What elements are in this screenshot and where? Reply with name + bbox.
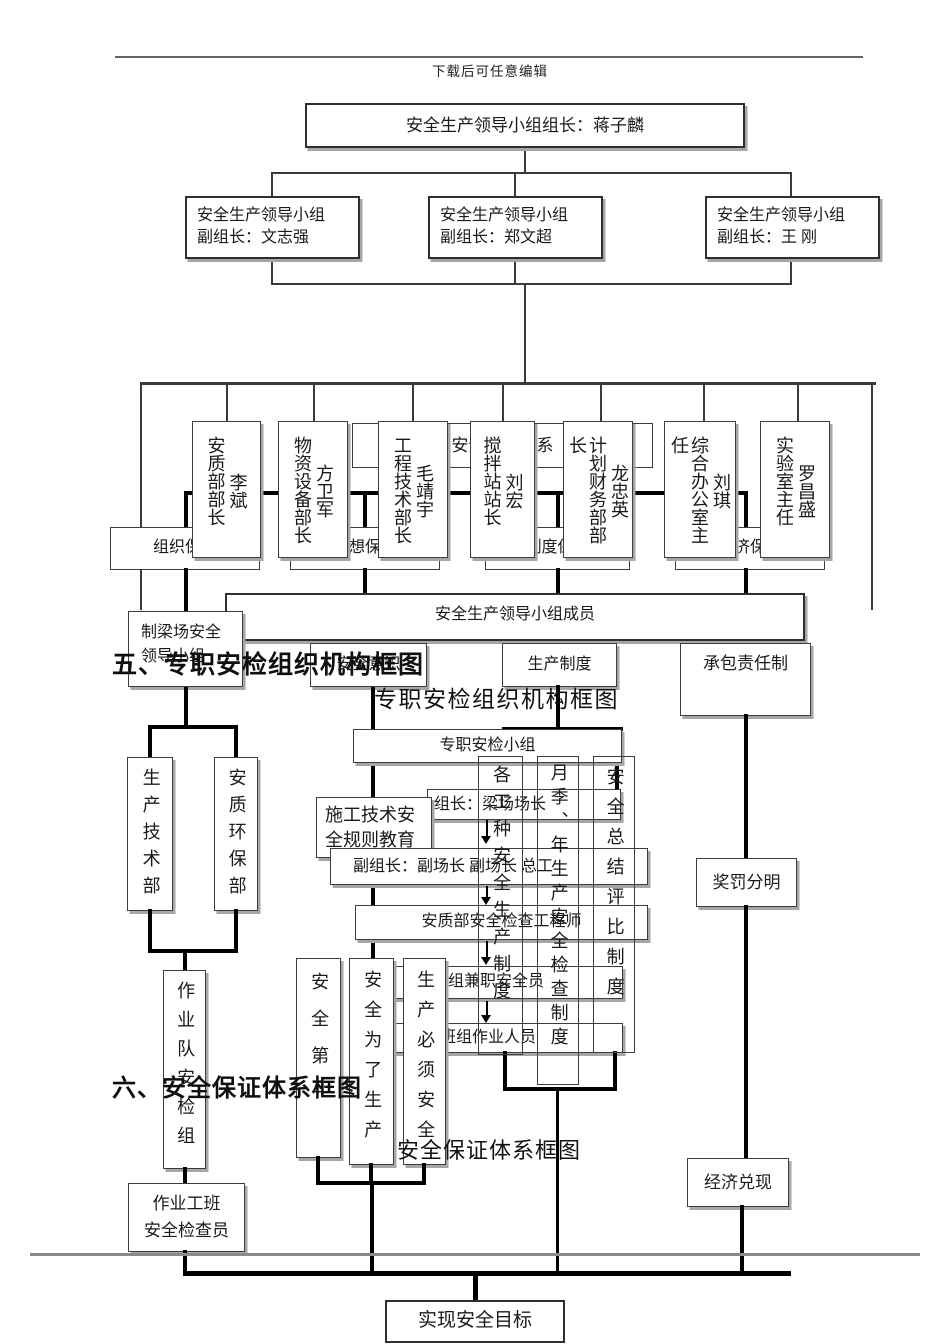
dept-box-materials: 物资设备部长 方卫军 bbox=[278, 421, 348, 558]
contract-box: 承包责任制 bbox=[680, 643, 811, 716]
connector-line bbox=[183, 1271, 791, 1276]
deputy-2-line2: 副组长：郑文超 bbox=[440, 227, 601, 249]
dept-box-quality: 安质部部长 李斌 bbox=[192, 421, 261, 558]
deputy-1-line1: 安全生产领导小组 bbox=[197, 205, 358, 227]
down-arrow-icon bbox=[486, 1001, 488, 1016]
connector-line bbox=[148, 909, 152, 953]
connector-line bbox=[226, 382, 228, 422]
connector-line bbox=[183, 949, 187, 972]
connector-line bbox=[871, 382, 873, 610]
deputy-box-2: 安全生产领导小组 副组长：郑文超 bbox=[428, 196, 603, 259]
team-deputy-label: 副组长：副场长 副场长 总工 bbox=[353, 858, 553, 875]
section6-heading: 六、安全保证体系框图 bbox=[112, 1068, 362, 1103]
dept-quality-title: 安质部部长 bbox=[206, 436, 226, 548]
connector-line bbox=[514, 259, 516, 284]
economic-cash-label: 经济兑现 bbox=[704, 1171, 772, 1195]
connector-line bbox=[184, 687, 188, 729]
goal-label: 实现安全目标 bbox=[418, 1308, 532, 1335]
connector-line bbox=[313, 382, 315, 422]
connector-line bbox=[412, 382, 414, 422]
header-rule bbox=[115, 56, 863, 58]
connector-line bbox=[234, 725, 238, 758]
production-system-label: 生产制度 bbox=[527, 654, 591, 676]
connector-line bbox=[503, 1051, 507, 1091]
slogan-safety-first: 安全第一 bbox=[306, 959, 331, 1157]
dept-box-mixing: 搅拌站站长 刘宏 bbox=[470, 421, 535, 558]
dept-box-lab: 实验室主任 罗昌盛 bbox=[760, 421, 830, 558]
slogan-safety-for-production: 安全为了生产 bbox=[359, 959, 384, 1164]
connector-line bbox=[514, 172, 516, 197]
dept-mixing-name: 刘宏 bbox=[504, 473, 524, 521]
dept-box-finance: 计划财务部部长 龙忠英 bbox=[563, 421, 633, 558]
safety-team-label: 专职安检小组 bbox=[439, 735, 535, 757]
connector-line bbox=[703, 382, 705, 422]
quality-env-dept-box: 安质环保部 bbox=[214, 757, 258, 911]
contract-label: 承包责任制 bbox=[703, 654, 788, 673]
work-shift-inspector-box: 作业工班 安全检查员 bbox=[128, 1183, 245, 1252]
members-box: 安全生产领导小组成员 bbox=[225, 593, 805, 641]
connector-line bbox=[790, 172, 792, 197]
connector-line bbox=[148, 949, 238, 953]
deputy-box-1: 安全生产领导小组 副组长：文志强 bbox=[185, 196, 360, 259]
connector-line bbox=[556, 491, 560, 529]
deputy-box-3: 安全生产领导小组 副组长：王 刚 bbox=[705, 196, 880, 259]
dept-finance-title: 计划财务部部长 bbox=[567, 436, 607, 548]
beam-yard-line1: 制梁场安全 bbox=[141, 621, 238, 645]
dept-quality-name: 李斌 bbox=[228, 473, 248, 521]
team-leader-box: 组长：梁场场长 bbox=[427, 789, 621, 820]
down-arrow-icon bbox=[486, 820, 488, 836]
connector-line bbox=[234, 909, 238, 953]
dept-box-office: 综合办公室主任 刘琪 bbox=[664, 421, 736, 558]
slogan-safety-first-box: 安全第一 bbox=[296, 958, 341, 1158]
connector-line bbox=[184, 568, 188, 613]
section5-heading: 五、专职安检组织机构框图 bbox=[112, 645, 424, 681]
figure6-title: 安全保证体系框图 bbox=[397, 1133, 581, 1165]
dept-mixing-title: 搅拌站站长 bbox=[482, 436, 502, 548]
connector-line bbox=[556, 1087, 559, 1275]
members-label: 安全生产领导小组成员 bbox=[435, 606, 595, 623]
connector-line bbox=[271, 283, 792, 285]
page-separator-line bbox=[30, 1253, 920, 1256]
dept-materials-name: 方卫军 bbox=[314, 464, 334, 530]
dept-lab-title: 实验室主任 bbox=[774, 436, 794, 548]
deputy-1-line2: 副组长：文志强 bbox=[197, 227, 358, 249]
connector-line bbox=[524, 147, 526, 173]
dept-box-engineering: 工程技术部长 毛靖宇 bbox=[378, 421, 448, 558]
dept-office-name: 刘琪 bbox=[711, 473, 731, 521]
work-shift-inspector-line2: 安全检查员 bbox=[129, 1217, 244, 1244]
dept-engineering-name: 毛靖宇 bbox=[414, 464, 434, 530]
column-periodic-check-label: 月季、年生产安全检查制度 bbox=[545, 757, 570, 1084]
column-summary-appraisal-box: 安全总结评比制度 bbox=[593, 756, 635, 1053]
connector-line bbox=[790, 259, 792, 284]
connector-line bbox=[271, 172, 273, 197]
figure5-title: 专职安检组织机构框图 bbox=[374, 680, 619, 714]
connector-line bbox=[613, 1051, 617, 1091]
connector-line bbox=[740, 1205, 744, 1275]
connector-line bbox=[473, 1271, 478, 1301]
connector-line bbox=[271, 172, 792, 174]
connector-line bbox=[502, 382, 504, 422]
connector-line bbox=[140, 382, 876, 385]
leader-box: 安全生产领导小组组长：蒋子麟 bbox=[305, 103, 745, 148]
dept-finance-name: 龙忠英 bbox=[609, 464, 629, 530]
dept-materials-title: 物资设备部长 bbox=[292, 436, 312, 548]
quality-env-dept-label: 安质环保部 bbox=[223, 758, 248, 910]
column-trade-rules-box: 各工种安全生产制度 bbox=[478, 756, 523, 1055]
leader-label: 安全生产领导小组组长：蒋子麟 bbox=[406, 114, 644, 138]
down-arrow-icon bbox=[486, 941, 488, 958]
connector-line bbox=[600, 382, 602, 422]
education-line1: 施工技术安 bbox=[325, 803, 431, 828]
reward-punishment-box: 奖罚分明 bbox=[696, 858, 797, 907]
dept-office-title: 综合办公室主任 bbox=[669, 436, 709, 548]
down-arrow-icon bbox=[481, 957, 491, 965]
down-arrow-icon bbox=[481, 1015, 491, 1023]
connector-line bbox=[744, 714, 748, 860]
work-shift-inspector-line1: 作业工班 bbox=[129, 1190, 244, 1217]
edit-note: 下载后可任意编辑 bbox=[360, 60, 620, 80]
column-trade-rules-label: 各工种安全生产制度 bbox=[488, 757, 513, 1054]
deputy-2-line1: 安全生产领导小组 bbox=[440, 205, 601, 227]
slogan-safety-for-production-box: 安全为了生产 bbox=[349, 958, 394, 1165]
connector-line bbox=[524, 283, 526, 383]
connector-line bbox=[148, 725, 238, 729]
deputy-3-line1: 安全生产领导小组 bbox=[717, 205, 878, 227]
connector-line bbox=[503, 1087, 617, 1091]
down-arrow-icon bbox=[481, 897, 491, 905]
column-periodic-check-box: 月季、年生产安全检查制度 bbox=[537, 756, 579, 1085]
dept-engineering-title: 工程技术部长 bbox=[392, 436, 412, 548]
connector-line bbox=[140, 382, 142, 610]
dept-lab-name: 罗昌盛 bbox=[796, 464, 816, 530]
reward-punishment-label: 奖罚分明 bbox=[713, 871, 781, 895]
connector-line bbox=[148, 725, 152, 758]
production-tech-dept-label: 生产技术部 bbox=[137, 758, 162, 910]
down-arrow-icon bbox=[481, 836, 491, 844]
document-page: { "page": { "edit_note": "下载后可任意编辑" }, "… bbox=[0, 0, 950, 1344]
connector-line bbox=[370, 1181, 374, 1275]
connector-line bbox=[271, 259, 273, 284]
connector-line bbox=[744, 905, 748, 1160]
goal-box: 实现安全目标 bbox=[385, 1300, 565, 1343]
connector-line bbox=[363, 491, 367, 529]
connector-line bbox=[184, 491, 188, 529]
economic-cash-box: 经济兑现 bbox=[687, 1158, 789, 1207]
production-tech-dept-box: 生产技术部 bbox=[127, 757, 173, 911]
column-summary-appraisal-label: 安全总结评比制度 bbox=[601, 757, 626, 1052]
connector-line bbox=[744, 491, 748, 529]
connector-line bbox=[797, 382, 799, 422]
deputy-3-line2: 副组长：王 刚 bbox=[717, 227, 878, 249]
